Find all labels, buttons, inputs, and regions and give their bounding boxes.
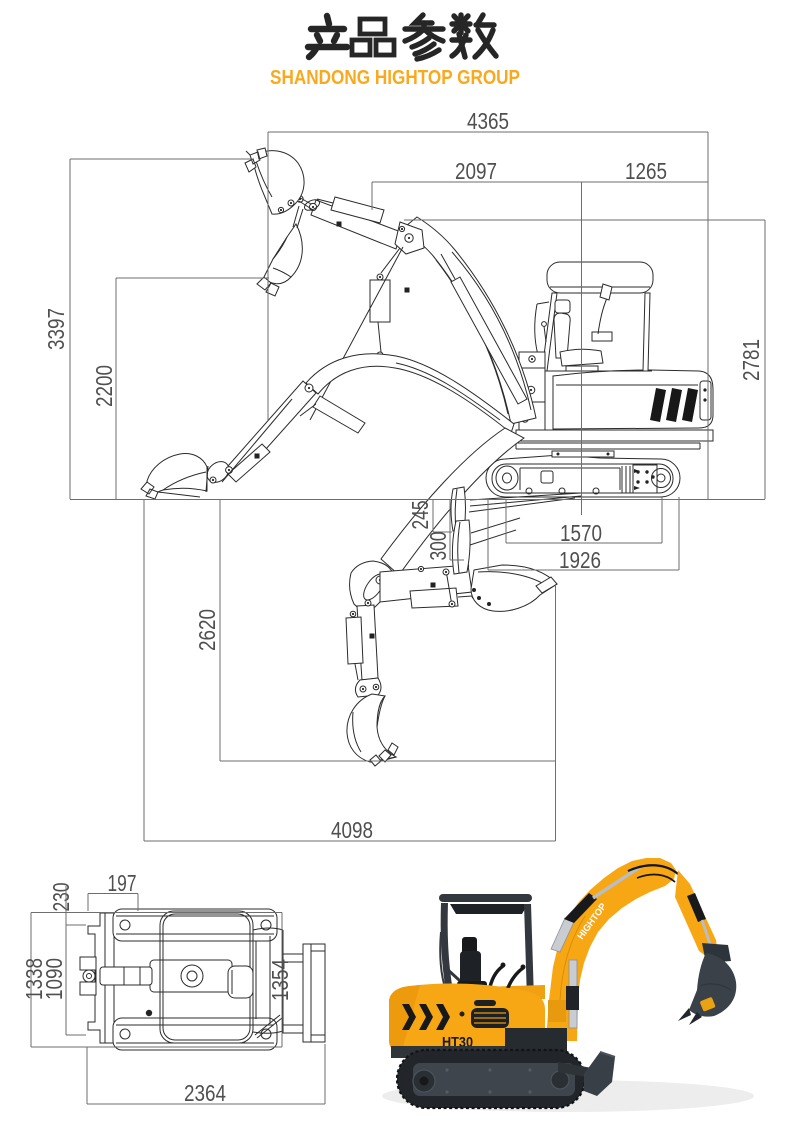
svg-text:2620: 2620 (194, 609, 220, 651)
svg-text:1265: 1265 (625, 158, 667, 184)
svg-text:2364: 2364 (184, 1080, 226, 1106)
svg-text:4365: 4365 (467, 108, 509, 134)
svg-text:3397: 3397 (43, 308, 69, 350)
svg-text:SHANDONG HIGHTOP GROUP: SHANDONG HIGHTOP GROUP (270, 67, 520, 89)
svg-text:2781: 2781 (738, 339, 764, 381)
svg-text:230: 230 (48, 883, 74, 912)
svg-text:1338: 1338 (21, 958, 47, 1000)
svg-text:1570: 1570 (560, 520, 602, 546)
svg-text:2097: 2097 (455, 158, 497, 184)
svg-text:4098: 4098 (331, 817, 373, 843)
svg-text:245: 245 (407, 501, 433, 530)
svg-text:1354: 1354 (267, 959, 293, 1001)
svg-text:2200: 2200 (91, 365, 117, 407)
svg-text:300: 300 (425, 532, 451, 561)
svg-text:197: 197 (108, 870, 137, 896)
svg-text:1926: 1926 (559, 547, 601, 573)
